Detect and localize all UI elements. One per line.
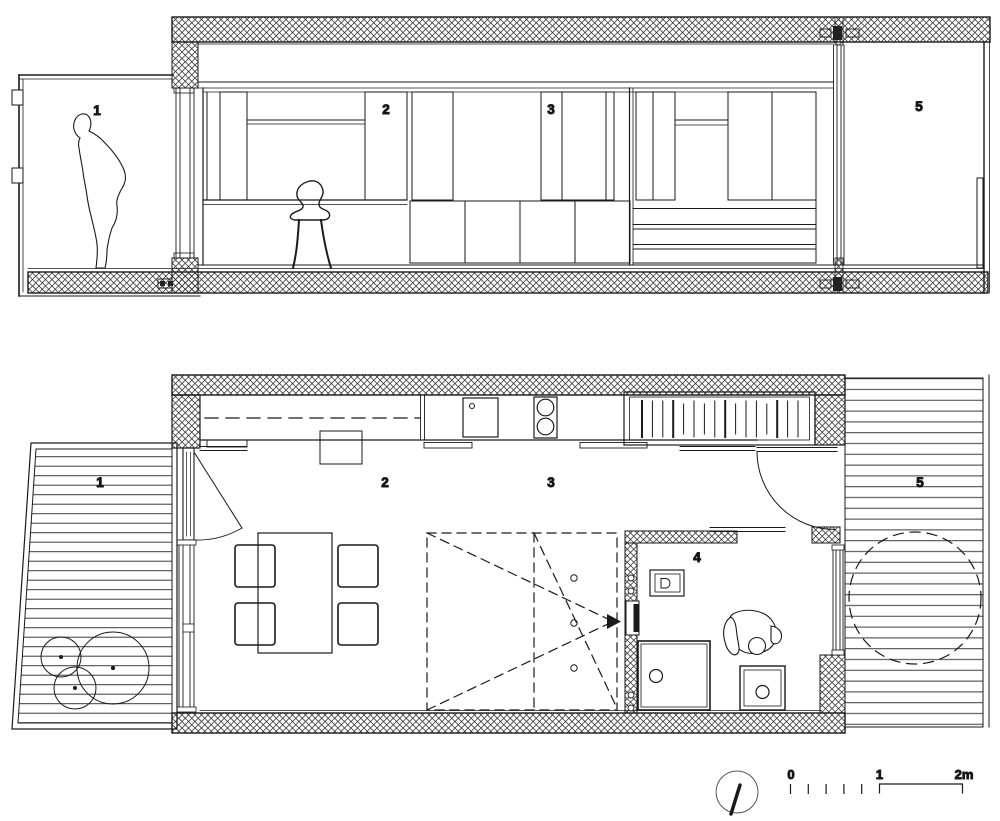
person-figure-plan xyxy=(724,610,782,654)
dining-set xyxy=(235,533,378,653)
fold-down-bed xyxy=(427,533,621,710)
section-room-label-1: 1 xyxy=(93,103,101,118)
drawing-svg: 1 2 3 5 xyxy=(0,0,1000,821)
toilet xyxy=(650,570,684,596)
door-swing-arc xyxy=(757,452,835,530)
section-cabinetry xyxy=(203,88,816,265)
chair xyxy=(235,603,275,645)
dining-table xyxy=(258,533,332,653)
wardrobe xyxy=(624,392,815,445)
section-roof-slab xyxy=(172,17,990,88)
section-chair xyxy=(290,181,331,268)
north-indicator xyxy=(716,771,758,814)
chair xyxy=(338,603,378,645)
scale-bar xyxy=(791,784,963,794)
deck-1 xyxy=(12,443,177,729)
section-room-label-5: 5 xyxy=(915,99,923,114)
section-room-label-2: 2 xyxy=(382,102,390,117)
person-figure-section xyxy=(74,114,126,268)
kitchen-sink xyxy=(463,398,498,437)
bathroom-window xyxy=(832,545,844,655)
section-view: 1 2 3 5 xyxy=(12,17,990,296)
architectural-drawing-sheet: 1 2 3 5 xyxy=(0,0,1000,821)
section-entry-glazing xyxy=(158,42,198,293)
plan-room-label-4: 4 xyxy=(693,550,701,565)
kitchen-appliance-block xyxy=(320,431,362,464)
left-window xyxy=(177,540,196,712)
plan-room-label-3: 3 xyxy=(547,475,555,490)
washbasin xyxy=(740,666,785,710)
scale-label-1: 1 xyxy=(876,767,883,782)
fold-arrow xyxy=(607,614,621,629)
door-swing-arc xyxy=(194,528,242,540)
kitchen-stove xyxy=(534,397,557,438)
shower xyxy=(638,641,710,710)
scale-bar-area: 0 1 2m xyxy=(716,767,973,814)
plan-room-label-2: 2 xyxy=(381,475,389,490)
deck-5 xyxy=(845,375,989,727)
scale-label-2m: 2m xyxy=(955,767,974,782)
left-entry-door xyxy=(183,448,242,540)
section-deck5-wall xyxy=(820,17,859,293)
chair xyxy=(338,545,378,587)
plan-view: 1 2 3 4 5 xyxy=(12,375,989,733)
scale-label-0: 0 xyxy=(787,767,794,782)
plan-room-label-1: 1 xyxy=(96,475,104,490)
section-room-label-3: 3 xyxy=(547,102,555,117)
section-deck-room5 xyxy=(977,42,990,293)
chair xyxy=(235,545,275,587)
entrance-door xyxy=(757,448,837,530)
pocket-door xyxy=(626,601,639,635)
plan-room-label-5: 5 xyxy=(916,475,924,490)
